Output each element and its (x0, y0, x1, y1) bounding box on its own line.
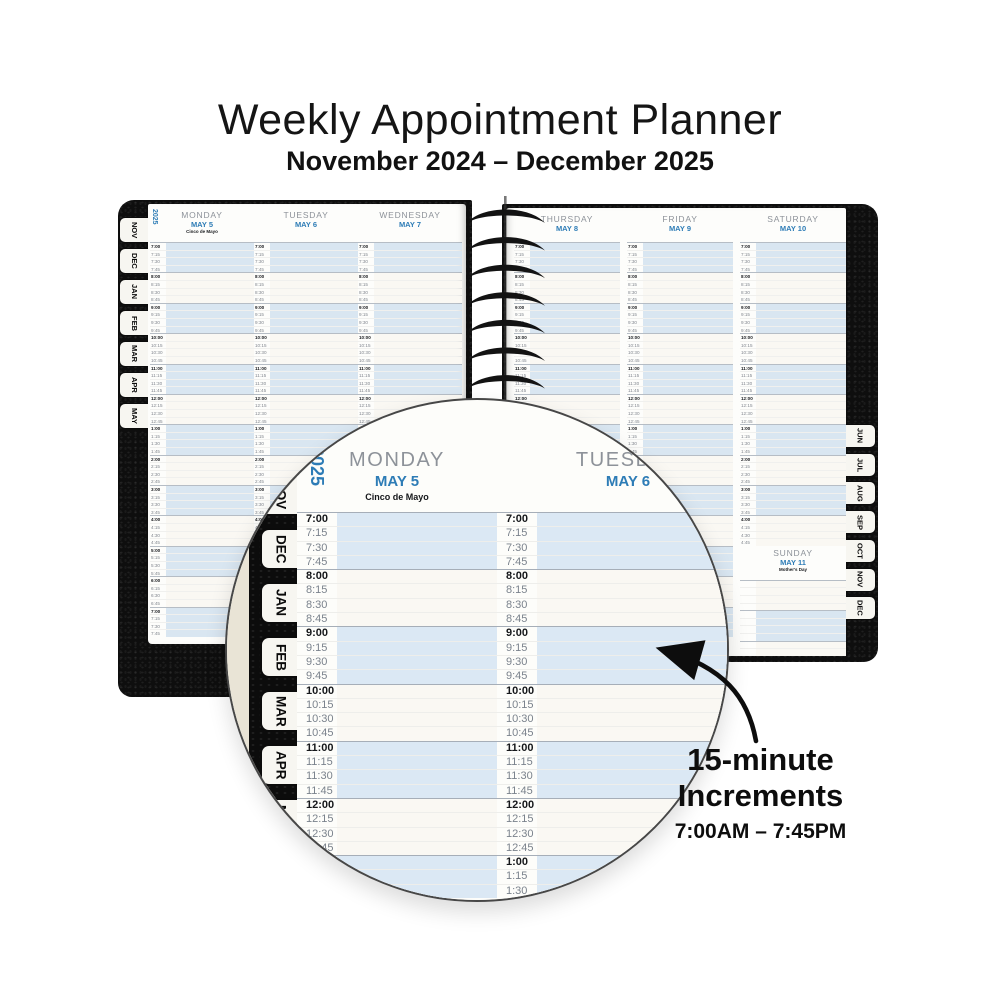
time-label: 9:00 (497, 627, 537, 640)
month-tab-label: MAY (130, 408, 139, 424)
time-slot-band (337, 785, 497, 798)
time-label: 7:45 (150, 630, 166, 637)
time-slot-band (270, 311, 358, 318)
month-tab-dec: DEC (845, 596, 876, 620)
time-slot-band (374, 273, 462, 280)
time-label: 3:30 (740, 501, 756, 508)
time-label: 7:45 (497, 556, 537, 569)
time-slot-band (756, 626, 846, 633)
time-slot-band (166, 319, 254, 326)
time-label: 8:30 (358, 289, 374, 296)
time-slot-band (270, 258, 358, 265)
time-label: 3:00 (740, 486, 756, 493)
time-label: 11:15 (254, 372, 270, 379)
time-label: 9:15 (627, 311, 643, 318)
time-slot-band (270, 349, 358, 356)
time-label: 7:00 (150, 608, 166, 615)
time-label: 12:45 (627, 418, 643, 425)
time-slot-band (537, 699, 729, 712)
time-slot-row: 7:15 (150, 250, 254, 258)
time-slot-row: 7:00 (627, 242, 733, 250)
time-slot-band (643, 251, 733, 258)
time-slot-band (270, 289, 358, 296)
month-tab-may: MAY (119, 403, 149, 429)
time-label: 10:45 (358, 357, 374, 364)
month-tab-nov: NOV (119, 217, 149, 243)
time-slot-band (374, 289, 462, 296)
time-slot-band (337, 799, 497, 812)
time-label: 12:00 (150, 395, 166, 402)
time-label: 4:30 (740, 532, 756, 539)
time-slot-band (374, 319, 462, 326)
time-slot-row: 9:30 (358, 318, 462, 326)
time-slot-row: 7:45 (150, 265, 254, 273)
time-slot-row: 10:15 (627, 341, 733, 349)
month-tab-label: APR (130, 377, 139, 393)
time-label: 5:30 (150, 562, 166, 569)
month-tab-label: OCT (856, 543, 865, 559)
time-label: 10:45 (150, 357, 166, 364)
time-label: 12:15 (627, 402, 643, 409)
time-label: 7:00 (297, 513, 337, 526)
time-slot-row: 1:15 (740, 432, 846, 440)
day-header: TUESDAYMAY 6 (497, 428, 729, 512)
time-slot-band (337, 742, 497, 755)
time-label: 2:15 (150, 463, 166, 470)
time-slot-row: 8:30 (740, 288, 846, 296)
time-label: 9:00 (297, 627, 337, 640)
time-slot-row: 9:00 (297, 626, 497, 640)
magnified-month-tab-nov: NOV (260, 474, 300, 516)
time-slot-band (337, 527, 497, 540)
time-slot-row: 8:15 (497, 583, 729, 597)
time-label: 7:30 (358, 258, 374, 265)
time-slot-row: 9:00 (150, 303, 254, 311)
time-label: 10:15 (150, 342, 166, 349)
magnified-month-tab-jan: JAN (260, 582, 300, 624)
time-label: 10:00 (297, 685, 337, 698)
time-slot-band (337, 570, 497, 583)
time-label: 6:30 (150, 592, 166, 599)
time-slot-band (756, 395, 846, 402)
time-slot-band (756, 289, 846, 296)
time-slot-row: 7:00 (358, 242, 462, 250)
time-slot-band (643, 402, 733, 409)
time-label: 7:45 (358, 266, 374, 273)
time-slot-row: 11:45 (254, 386, 358, 394)
annotation-line1: 15-minute (633, 742, 888, 778)
time-label: 9:45 (740, 327, 756, 334)
time-label: 8:45 (254, 296, 270, 303)
time-label: 5:45 (150, 570, 166, 577)
time-slot-band (166, 311, 254, 318)
time-slot-band (337, 627, 497, 640)
time-slot-band (756, 532, 846, 539)
time-slot-band (643, 387, 733, 394)
time-slot-row: 9:30 (627, 318, 733, 326)
time-label: 7:30 (150, 258, 166, 265)
time-slot-row: 7:30 (150, 257, 254, 265)
time-label (740, 596, 756, 603)
month-tab-label: SEP (856, 515, 865, 530)
time-slot-band (643, 289, 733, 296)
time-slot-band (374, 342, 462, 349)
time-label: 12:45 (297, 842, 337, 855)
time-label: 4:30 (150, 532, 166, 539)
time-slot-row: 11:00 (627, 364, 733, 372)
time-label: 12:15 (150, 402, 166, 409)
time-slot-row: 9:45 (497, 669, 729, 683)
time-label: 11:45 (627, 387, 643, 394)
time-label: 10:30 (254, 349, 270, 356)
time-slot-row: 8:00 (297, 569, 497, 583)
time-slot-row: 8:30 (497, 598, 729, 612)
time-label: 11:00 (150, 365, 166, 372)
time-slot-row: 11:45 (150, 386, 254, 394)
time-label: 7:15 (627, 251, 643, 258)
time-slot-band (374, 304, 462, 311)
time-label: 1:00 (150, 425, 166, 432)
time-slot-band (270, 281, 358, 288)
time-label: 7:00 (627, 243, 643, 250)
time-label: 5:00 (150, 547, 166, 554)
month-tab-label: MAR (274, 696, 289, 727)
time-label: 2:45 (150, 478, 166, 485)
time-slot-band (270, 372, 358, 379)
time-slot-band (756, 372, 846, 379)
month-tab-label: NOV (856, 571, 865, 587)
time-label: 9:30 (150, 319, 166, 326)
time-slot-band (374, 243, 462, 250)
time-label: 7:45 (254, 266, 270, 273)
time-label: 9:15 (297, 642, 337, 655)
time-slot-row (740, 648, 846, 656)
time-slot-band (337, 828, 497, 841)
time-label: 10:15 (740, 342, 756, 349)
time-label: 4:15 (150, 524, 166, 531)
time-slot-band (756, 471, 846, 478)
time-slot-row: 10:00 (150, 333, 254, 341)
time-label: 10:45 (297, 727, 337, 740)
time-label: 11:00 (297, 742, 337, 755)
time-slot-row: 12:30 (297, 827, 497, 841)
time-label: 10:45 (254, 357, 270, 364)
time-slot-row (740, 580, 846, 588)
time-label: 11:45 (297, 785, 337, 798)
time-slot-row: 7:00 (497, 512, 729, 526)
time-slot-band (756, 433, 846, 440)
time-label: 1:00 (497, 856, 537, 869)
time-label: 3:45 (150, 509, 166, 516)
time-slot-band (643, 266, 733, 273)
time-slot-band (756, 402, 846, 409)
time-slot-band (756, 634, 846, 641)
time-label: 9:30 (358, 319, 374, 326)
time-slot-band (166, 266, 254, 273)
time-slot-band (756, 448, 846, 455)
time-label: 10:00 (254, 334, 270, 341)
time-slot-band (756, 334, 846, 341)
time-slot-band (643, 319, 733, 326)
time-slot-band (166, 349, 254, 356)
time-label: 1:15 (740, 433, 756, 440)
time-label: 4:45 (740, 539, 756, 546)
day-date: MAY 5 (150, 220, 254, 229)
time-slot-row: 7:15 (740, 250, 846, 258)
time-label: 7:15 (358, 251, 374, 258)
time-label: 7:15 (254, 251, 270, 258)
time-label: 10:45 (497, 727, 537, 740)
time-label: 7:45 (150, 266, 166, 273)
time-slot-band (643, 296, 733, 303)
time-slot-row: 8:00 (358, 272, 462, 280)
time-slot-band (270, 387, 358, 394)
time-label: 11:30 (627, 380, 643, 387)
time-label: 10:00 (150, 334, 166, 341)
time-slot-row: 10:00 (740, 333, 846, 341)
time-label: 2:00 (740, 456, 756, 463)
time-slot-row: 7:30 (497, 541, 729, 555)
time-label: 11:30 (150, 380, 166, 387)
annotation-callout: 15-minute Increments 7:00AM – 7:45PM (633, 742, 888, 845)
time-slot-row: 10:45 (627, 356, 733, 364)
time-slot-row: 10:45 (254, 356, 358, 364)
time-label: 8:45 (740, 296, 756, 303)
time-slot-band (756, 258, 846, 265)
time-label: 11:00 (497, 742, 537, 755)
time-slot-band (756, 319, 846, 326)
time-label: 7:15 (150, 615, 166, 622)
day-date: MAY 9 (627, 224, 733, 233)
time-slot-band (374, 357, 462, 364)
time-slot-row: 9:45 (254, 326, 358, 334)
time-label: 11:30 (297, 770, 337, 783)
time-label: 7:00 (358, 243, 374, 250)
time-slot-row: 2:30 (740, 470, 846, 478)
time-slot-band (270, 296, 358, 303)
time-slot-band (337, 856, 497, 869)
time-slot-row: 11:15 (150, 371, 254, 379)
time-slot-band (756, 425, 846, 432)
time-slot-band (270, 273, 358, 280)
time-label: 7:30 (150, 623, 166, 630)
time-label: 9:15 (150, 311, 166, 318)
time-slot-row: 9:00 (627, 303, 733, 311)
time-slot-row: 7:45 (254, 265, 358, 273)
time-label: 10:00 (740, 334, 756, 341)
time-slot-band (374, 334, 462, 341)
time-slot-row: 7:45 (740, 265, 846, 273)
time-slot-band (537, 613, 729, 626)
time-label: 10:00 (497, 685, 537, 698)
time-label: 11:30 (740, 380, 756, 387)
time-label: 7:30 (497, 542, 537, 555)
time-label: 12:30 (497, 828, 537, 841)
magnified-month-tab-apr: APR (260, 744, 300, 786)
time-label: 9:30 (740, 319, 756, 326)
time-slot-band (537, 584, 729, 597)
time-slot-row: 12:45 (627, 417, 733, 425)
time-slot-row: 7:15 (254, 250, 358, 258)
time-slot-row: 10:30 (740, 348, 846, 356)
time-label: 6:00 (150, 577, 166, 584)
time-slot-row: 9:15 (297, 641, 497, 655)
time-slot-row: 8:30 (627, 288, 733, 296)
time-slot-row: 8:30 (150, 288, 254, 296)
time-slot-row: 8:15 (297, 583, 497, 597)
time-label: 7:30 (297, 542, 337, 555)
time-label: 10:30 (150, 349, 166, 356)
time-slot-band (756, 509, 846, 516)
time-slot-row: 9:45 (297, 669, 497, 683)
time-label: 8:30 (497, 599, 537, 612)
time-label: 1:30 (150, 440, 166, 447)
month-tab-mar: MAR (119, 341, 149, 367)
month-tab-oct: OCT (845, 539, 876, 563)
time-slot-row: 11:30 (358, 379, 462, 387)
month-tab-label: JUL (856, 458, 865, 472)
time-label: 10:30 (358, 349, 374, 356)
time-slot-row: 7:15 (358, 250, 462, 258)
time-slot-row: 8:15 (358, 280, 462, 288)
time-slot-band (374, 372, 462, 379)
time-label: 9:45 (627, 327, 643, 334)
time-slot-row: 12:15 (740, 401, 846, 409)
time-slot-row (740, 618, 846, 626)
time-label: 9:30 (254, 319, 270, 326)
time-slot-band (756, 266, 846, 273)
day-header: FRIDAYMAY 9 (627, 208, 733, 242)
time-slot-row: 11:15 (740, 371, 846, 379)
time-label: 2:45 (740, 478, 756, 485)
time-label: 2:30 (740, 471, 756, 478)
time-slot-band (270, 243, 358, 250)
time-label: 1:30 (297, 885, 337, 898)
time-slot-row: 9:15 (254, 310, 358, 318)
time-slot-row: 12:30 (627, 409, 733, 417)
time-label: 12:15 (297, 813, 337, 826)
holiday-label: Cinco de Mayo (150, 229, 254, 235)
time-slot-band (756, 501, 846, 508)
time-slot-row: 8:45 (627, 295, 733, 303)
time-slot-band (166, 372, 254, 379)
time-slot-band (537, 527, 729, 540)
time-label: 9:30 (297, 656, 337, 669)
time-slot-band (337, 670, 497, 683)
time-label: 8:45 (297, 613, 337, 626)
time-label: 12:00 (297, 799, 337, 812)
time-label: 11:45 (150, 387, 166, 394)
time-slot-row: 8:30 (358, 288, 462, 296)
time-label: 9:15 (358, 311, 374, 318)
time-slot-band (337, 584, 497, 597)
time-label: 12:15 (497, 813, 537, 826)
time-slot-row (740, 610, 846, 618)
annotation-time-range: 7:00AM – 7:45PM (633, 819, 888, 845)
time-label: 10:15 (627, 342, 643, 349)
time-slot-band (337, 713, 497, 726)
time-slot-row: 1:15 (497, 869, 729, 883)
time-slot-band (166, 289, 254, 296)
time-slot-band (756, 478, 846, 485)
time-slot-band (756, 539, 846, 546)
time-slot-band (537, 542, 729, 555)
time-slot-row: 8:00 (740, 272, 846, 280)
time-slot-row (740, 595, 846, 603)
time-label: 12:00 (627, 395, 643, 402)
time-label: 9:30 (497, 656, 537, 669)
time-label: 8:15 (358, 281, 374, 288)
time-slot-band (166, 334, 254, 341)
time-label: 8:15 (254, 281, 270, 288)
time-slot-band (337, 727, 497, 740)
time-label: 12:30 (740, 410, 756, 417)
time-label: 8:00 (627, 273, 643, 280)
time-slot-band (756, 251, 846, 258)
time-slot-band (756, 342, 846, 349)
day-date: MAY 7 (358, 220, 462, 229)
time-slot-band (537, 885, 729, 898)
day-name: MONDAY (297, 448, 497, 472)
time-slot-band (337, 642, 497, 655)
time-slot-row: 1:15 (297, 869, 497, 883)
time-slot-band (643, 410, 733, 417)
holiday-label: Mother's Day (740, 567, 846, 573)
time-slot-band (374, 380, 462, 387)
time-label: 7:15 (740, 251, 756, 258)
time-label: 9:15 (497, 642, 537, 655)
time-label: 10:15 (254, 342, 270, 349)
time-slot-row: 11:30 (150, 379, 254, 387)
time-label: 12:15 (740, 402, 756, 409)
time-slot-row: 11:15 (358, 371, 462, 379)
time-slot-band (756, 243, 846, 250)
month-tab-dec: DEC (119, 248, 149, 274)
time-label: 1:30 (497, 885, 537, 898)
time-label (740, 581, 756, 588)
time-label: 1:00 (297, 856, 337, 869)
time-slot-band (166, 342, 254, 349)
time-slot-row: 2:15 (740, 462, 846, 470)
time-label: 9:00 (740, 304, 756, 311)
time-slot-row: 8:45 (297, 612, 497, 626)
time-slot-row: 8:45 (254, 295, 358, 303)
time-label: 10:30 (740, 349, 756, 356)
time-slot-row: 8:45 (740, 295, 846, 303)
time-slot-band (643, 311, 733, 318)
time-slot-row: 7:45 (297, 555, 497, 569)
time-slot-row: 12:00 (740, 394, 846, 402)
time-label: 9:00 (150, 304, 166, 311)
time-label: 4:15 (740, 524, 756, 531)
time-slot-row: 11:00 (740, 364, 846, 372)
time-slot-row: 7:00 (740, 242, 846, 250)
time-label: 10:30 (297, 713, 337, 726)
day-name: SUNDAY (740, 549, 846, 558)
time-slot-row: 3:00 (740, 485, 846, 493)
time-slot-band (166, 258, 254, 265)
time-slot-row: 10:15 (358, 341, 462, 349)
time-label (740, 626, 756, 633)
time-label: 8:00 (497, 570, 537, 583)
time-slot-band (756, 619, 846, 626)
time-slot-row: 8:15 (150, 280, 254, 288)
time-slot-row: 8:30 (297, 598, 497, 612)
time-slot-row: 10:30 (358, 348, 462, 356)
time-slot-band (337, 842, 497, 855)
time-label: 10:45 (627, 357, 643, 364)
time-slot-row: 11:00 (254, 364, 358, 372)
